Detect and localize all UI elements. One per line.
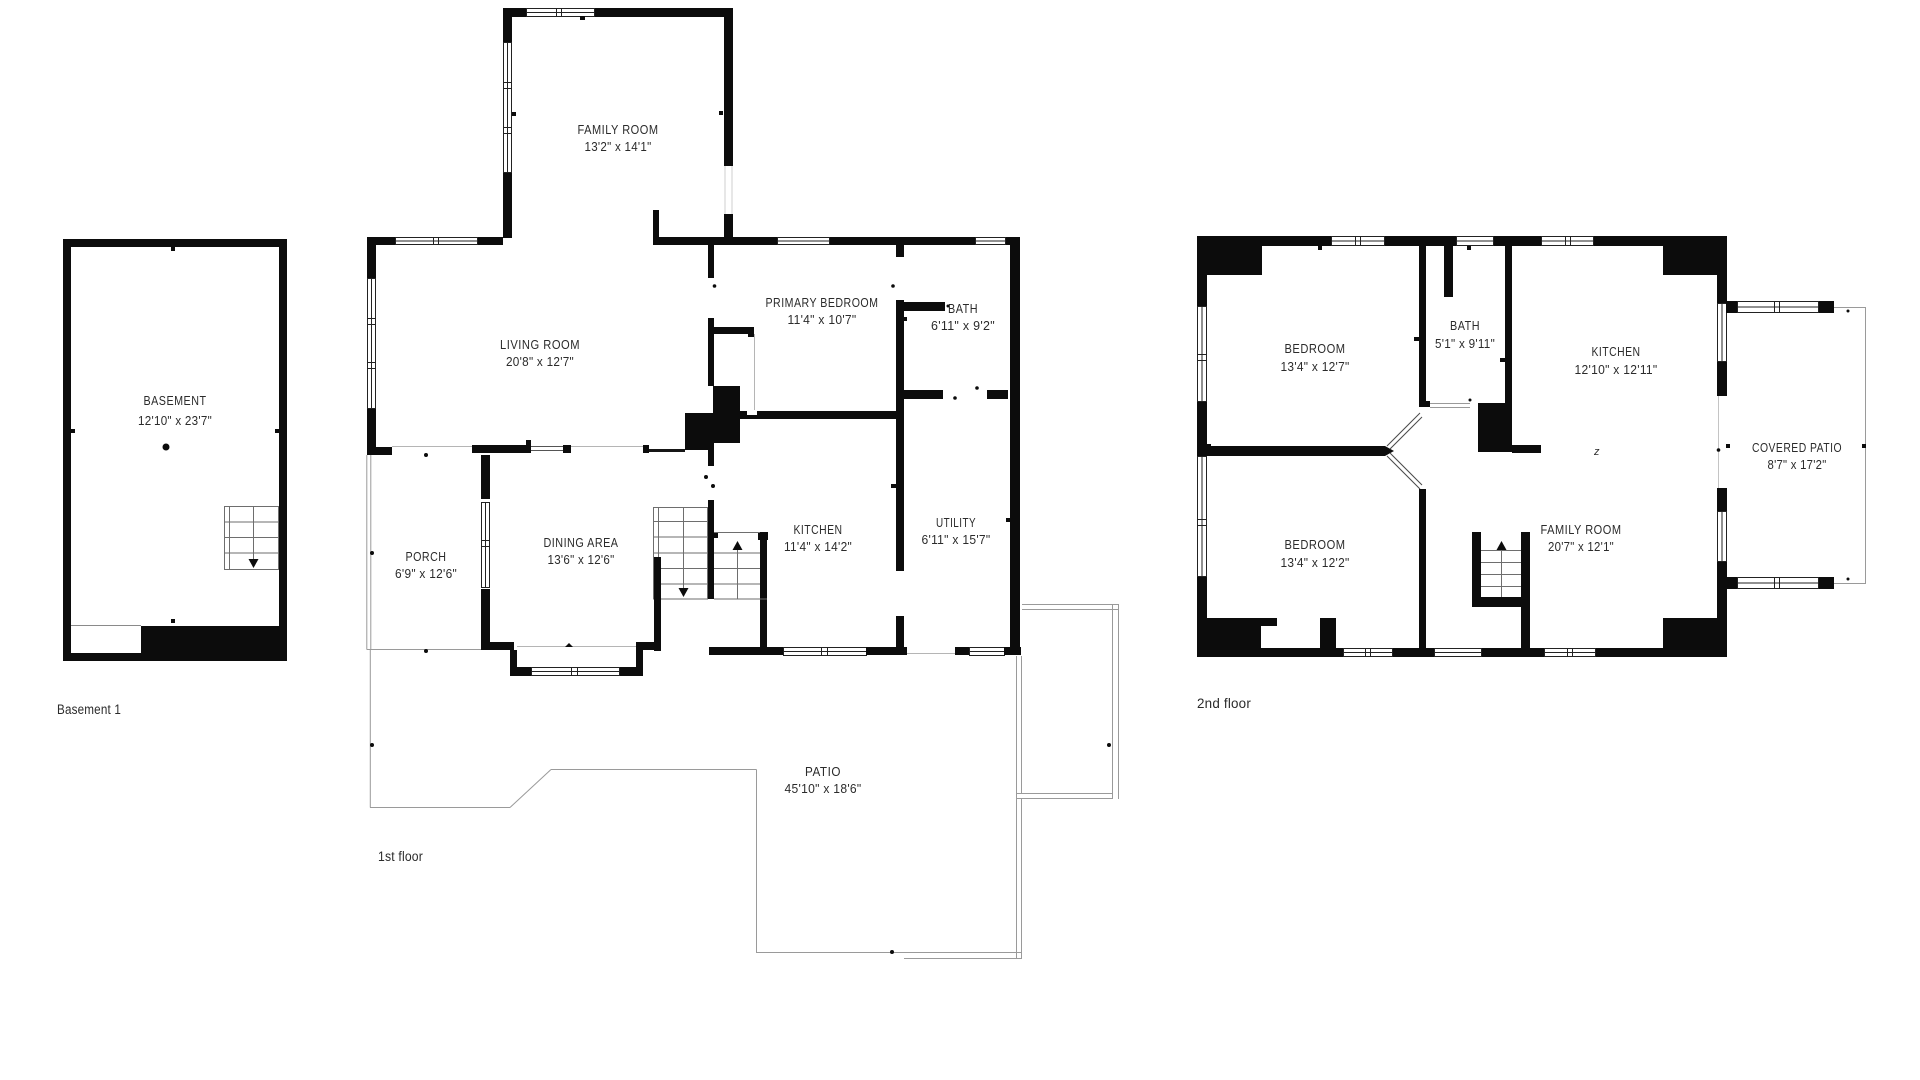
svg-text:PORCH: PORCH [406, 549, 447, 564]
svg-text:PRIMARY BEDROOM: PRIMARY BEDROOM [766, 295, 879, 310]
svg-text:BASEMENT: BASEMENT [144, 393, 207, 408]
svg-text:BATH: BATH [948, 301, 978, 316]
svg-text:BEDROOM: BEDROOM [1285, 537, 1346, 552]
svg-text:BATH: BATH [1450, 318, 1480, 333]
svg-text:KITCHEN: KITCHEN [1592, 344, 1641, 359]
svg-text:6'11" x 9'2": 6'11" x 9'2" [931, 318, 995, 333]
svg-text:BEDROOM: BEDROOM [1285, 341, 1346, 356]
svg-text:z: z [1593, 446, 1600, 458]
svg-text:Basement 1: Basement 1 [57, 702, 121, 717]
svg-text:13'4" x 12'2": 13'4" x 12'2" [1281, 555, 1350, 570]
svg-text:FAMILY ROOM: FAMILY ROOM [578, 122, 659, 137]
svg-text:LIVING ROOM: LIVING ROOM [500, 337, 580, 352]
svg-text:11'4" x 14'2": 11'4" x 14'2" [784, 539, 852, 554]
svg-text:KITCHEN: KITCHEN [794, 522, 843, 537]
svg-text:12'10" x 12'11": 12'10" x 12'11" [1575, 362, 1658, 377]
svg-text:20'8" x 12'7": 20'8" x 12'7" [506, 354, 574, 369]
svg-text:COVERED PATIO: COVERED PATIO [1752, 440, 1842, 455]
svg-text:FAMILY ROOM: FAMILY ROOM [1541, 522, 1622, 537]
svg-text:12'10" x 23'7": 12'10" x 23'7" [138, 413, 212, 428]
svg-text:6'9" x 12'6": 6'9" x 12'6" [395, 566, 457, 581]
svg-text:2nd floor: 2nd floor [1197, 696, 1251, 711]
svg-text:UTILITY: UTILITY [936, 515, 976, 530]
svg-text:8'7" x 17'2": 8'7" x 17'2" [1768, 457, 1827, 472]
svg-text:1st floor: 1st floor [378, 849, 423, 864]
svg-text:13'2" x 14'1": 13'2" x 14'1" [585, 139, 652, 154]
svg-text:6'11" x 15'7": 6'11" x 15'7" [922, 532, 991, 547]
svg-text:13'6" x 12'6": 13'6" x 12'6" [548, 552, 615, 567]
svg-text:5'1" x 9'11": 5'1" x 9'11" [1435, 336, 1495, 351]
svg-text:13'4" x 12'7": 13'4" x 12'7" [1281, 359, 1350, 374]
svg-text:PATIO: PATIO [805, 764, 841, 779]
svg-text:20'7" x 12'1": 20'7" x 12'1" [1548, 539, 1614, 554]
svg-text:45'10" x 18'6": 45'10" x 18'6" [785, 781, 862, 796]
svg-text:DINING AREA: DINING AREA [544, 535, 619, 550]
svg-text:11'4" x 10'7": 11'4" x 10'7" [788, 312, 857, 327]
